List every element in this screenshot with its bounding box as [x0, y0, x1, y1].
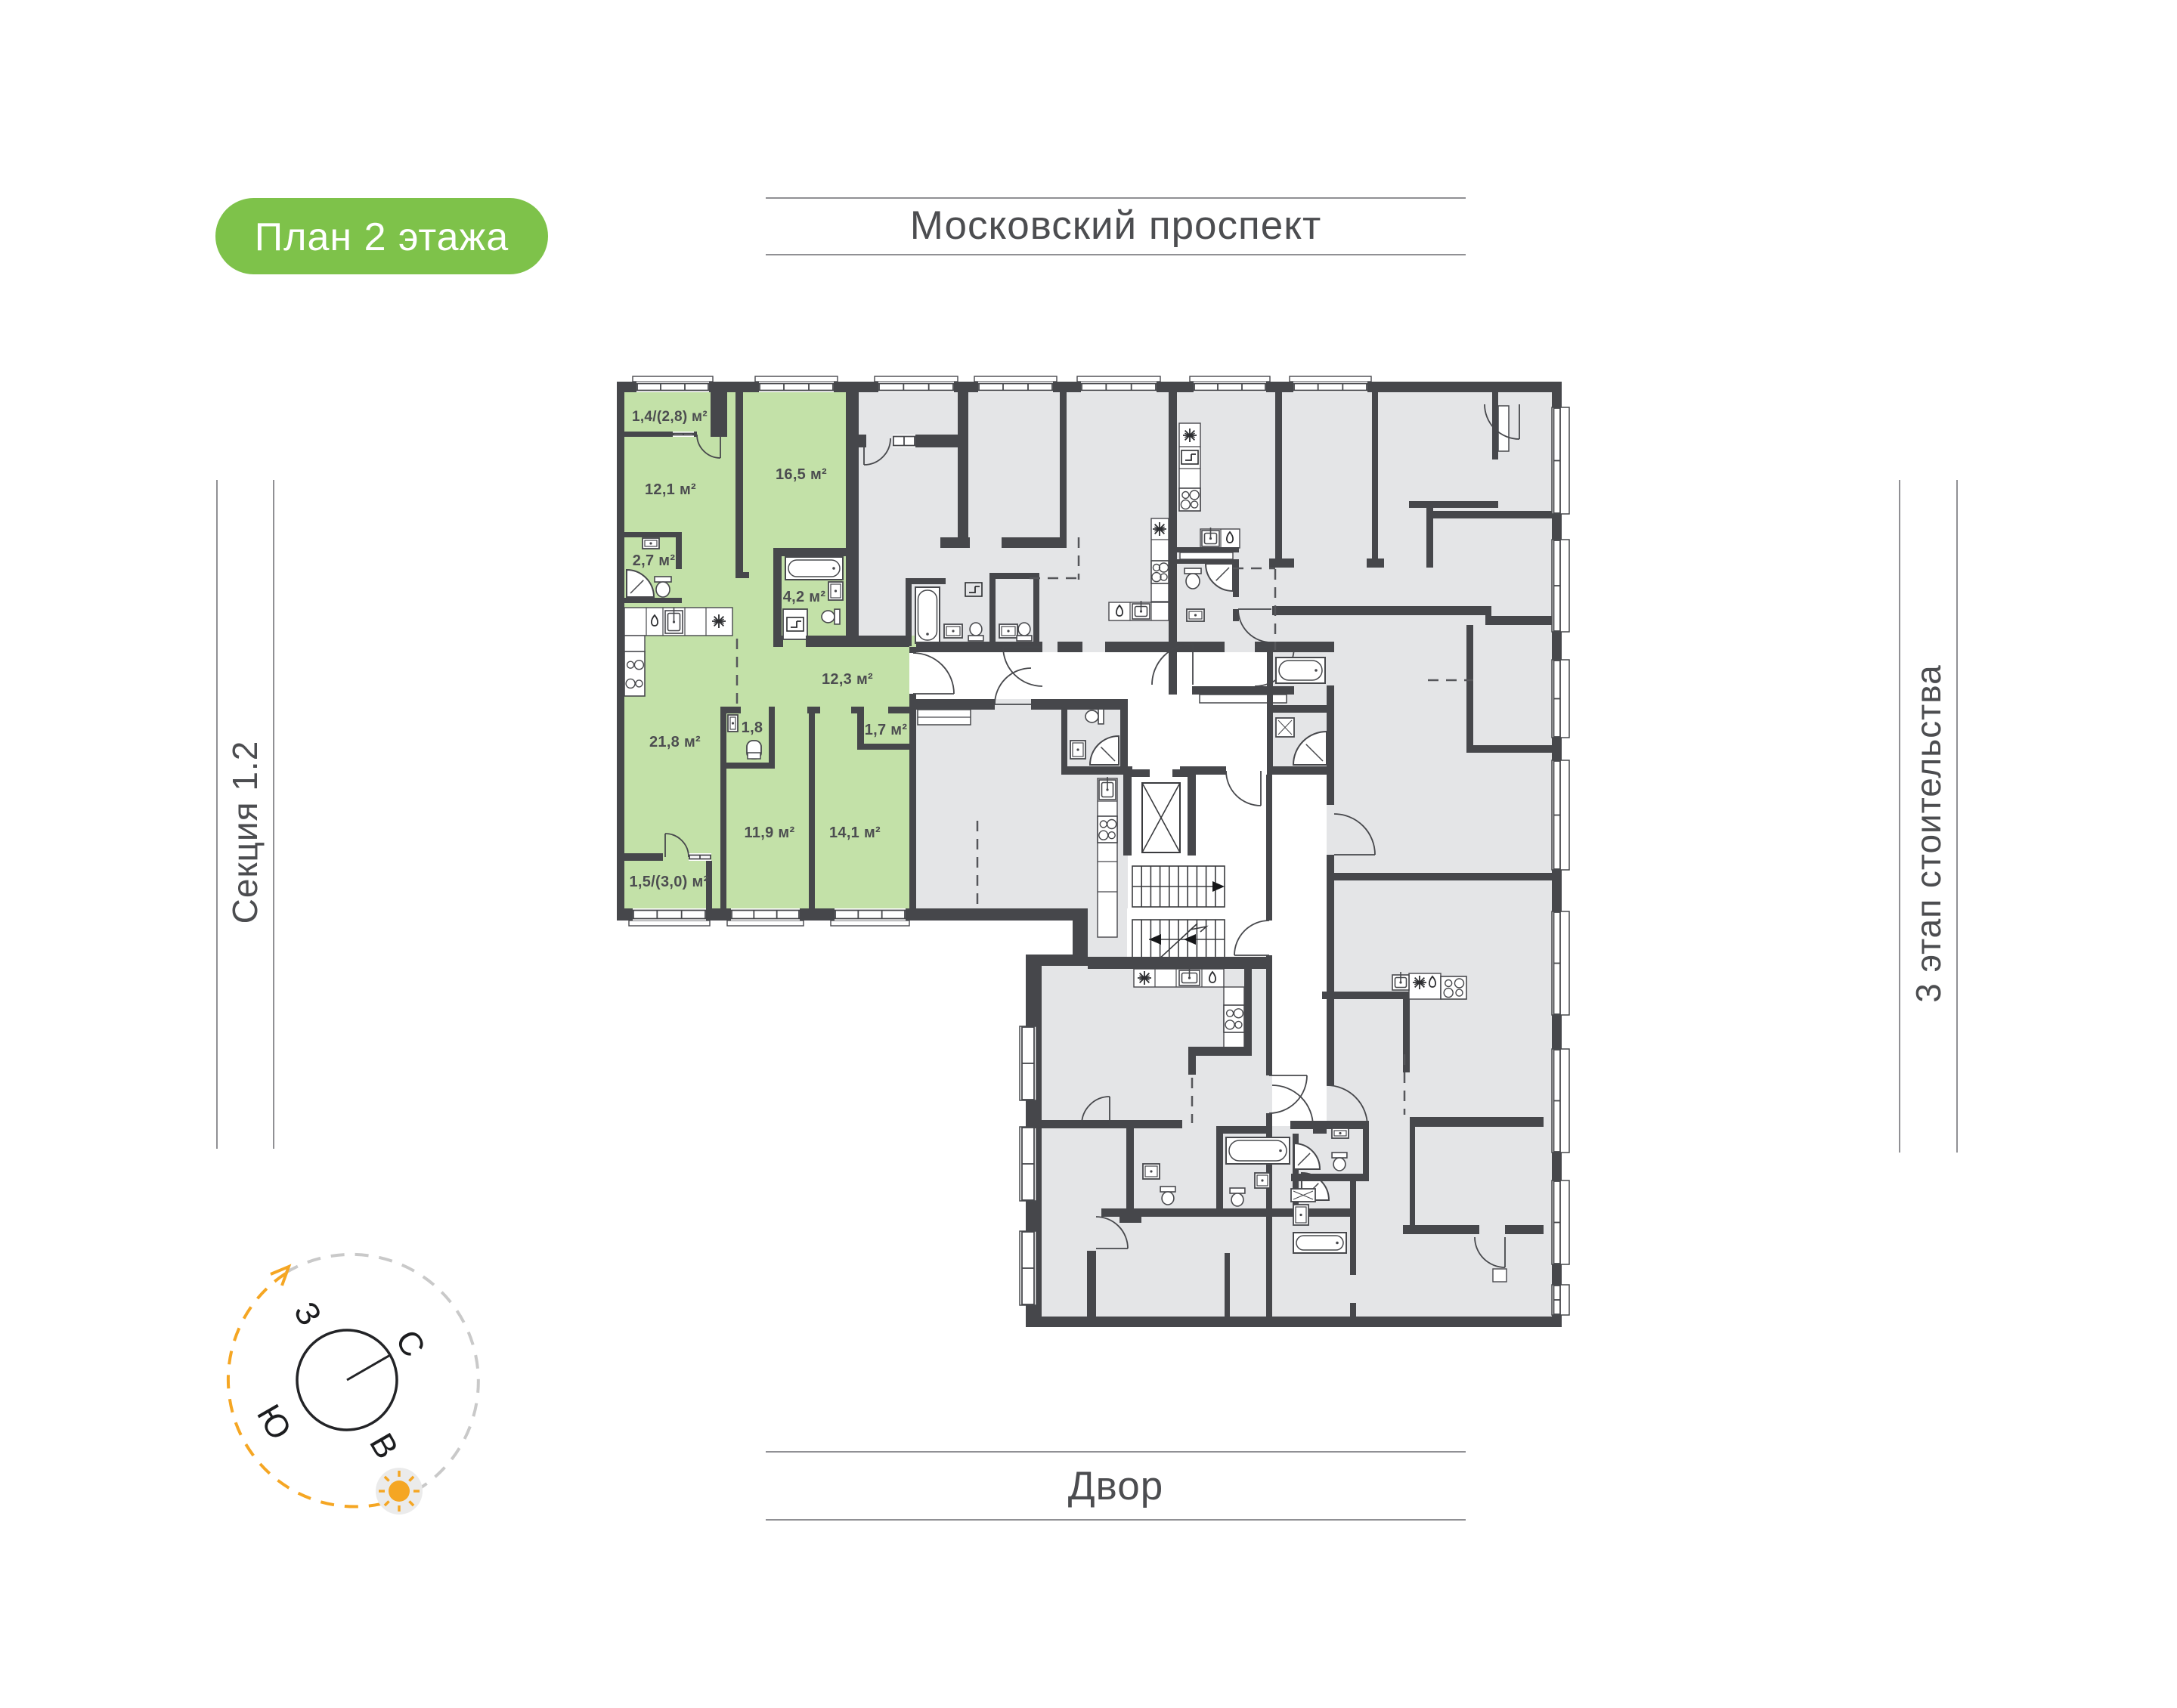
svg-text:Двор: Двор: [1068, 1464, 1163, 1508]
svg-text:2,7 м²: 2,7 м²: [633, 552, 676, 569]
svg-text:12,1 м²: 12,1 м²: [645, 481, 696, 498]
svg-text:16,5 м²: 16,5 м²: [776, 466, 827, 483]
svg-text:12,3 м²: 12,3 м²: [822, 671, 873, 688]
svg-text:1,7 м²: 1,7 м²: [865, 722, 908, 738]
svg-text:1,4/(2,8) м²: 1,4/(2,8) м²: [632, 409, 708, 425]
svg-text:14,1 м²: 14,1 м²: [829, 825, 881, 841]
svg-text:3 этап стоительства: 3 этап стоительства: [1909, 664, 1948, 1002]
svg-text:4,2 м²: 4,2 м²: [783, 589, 826, 605]
svg-text:1,8: 1,8: [742, 719, 763, 736]
svg-text:11,9 м²: 11,9 м²: [745, 825, 795, 841]
svg-text:21,8 м²: 21,8 м²: [649, 734, 701, 750]
svg-text:1,5/(3,0) м²: 1,5/(3,0) м²: [629, 874, 708, 890]
svg-text:План 2 этажа: План 2 этажа: [255, 215, 509, 259]
svg-text:Московский проспект: Московский проспект: [910, 203, 1322, 248]
svg-text:Секция 1.2: Секция 1.2: [225, 741, 265, 924]
